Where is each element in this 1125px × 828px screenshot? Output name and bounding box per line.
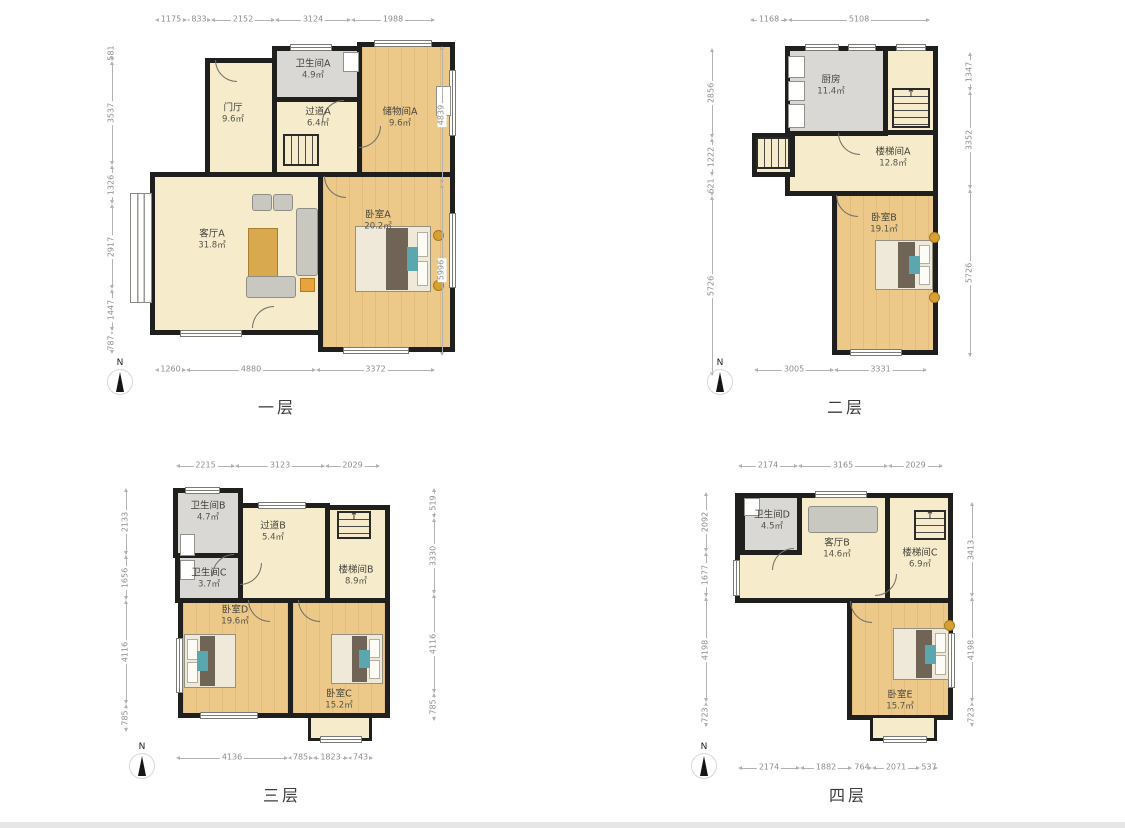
- north-arrow: N: [706, 358, 734, 395]
- bed-pillow: [935, 633, 946, 653]
- dims-top: 1168 5108: [750, 14, 930, 26]
- dim-seg: 5726: [706, 196, 718, 376]
- dim-seg: 4839: [436, 46, 448, 184]
- bed: [355, 226, 431, 292]
- bed-runner: [407, 247, 418, 271]
- room-name: 储物间A: [383, 106, 418, 118]
- room-label-corridor-b: 过道B 5.4㎡: [260, 520, 286, 543]
- room-area: 6.9㎡: [902, 560, 937, 571]
- bed: [184, 634, 236, 688]
- room-label-stairwell-a: 楼梯间A 12.8㎡: [876, 146, 911, 169]
- floor-title: 四层: [788, 782, 908, 806]
- bed-blanket: [386, 228, 408, 290]
- window: [896, 44, 926, 51]
- stairs-up-arrow: ↑: [906, 87, 915, 100]
- dim-seg: 1447: [106, 289, 118, 331]
- room-area: 19.6㎡: [221, 617, 248, 628]
- dims-top: 1175 833 2152 3124 1988: [155, 14, 435, 26]
- dim-seg: 2152: [211, 14, 275, 26]
- dim-seg: 833: [187, 14, 211, 26]
- dims-right: 4839 5996: [436, 46, 448, 356]
- window: [200, 712, 258, 719]
- room-name: 卧室A: [364, 209, 391, 221]
- dims-right: 1347 3352 5726: [964, 52, 976, 357]
- window: [733, 560, 740, 596]
- window: [185, 487, 220, 494]
- dim-seg: 2071: [872, 762, 920, 774]
- dim-seg: 2174: [738, 762, 800, 774]
- room-area: 4.9㎡: [296, 71, 331, 82]
- room-area: 9.6㎡: [383, 119, 418, 130]
- nightstand-lamp: [929, 232, 940, 243]
- dim-seg: 3352: [964, 91, 976, 189]
- bed: [875, 240, 933, 290]
- bed-pillow: [919, 245, 930, 264]
- floor-1-plan: 1175 833 2152 3124 1988 581 3537 1326 29…: [100, 8, 460, 418]
- bed-pillow: [417, 232, 428, 257]
- dim-seg: 1347: [964, 52, 976, 91]
- kitchen-fixture: [788, 81, 805, 101]
- bed-pillow: [369, 660, 380, 679]
- stairs-up-arrow: ↑: [925, 509, 934, 522]
- room-area: 4.7㎡: [190, 513, 225, 524]
- dim-seg: 4198: [700, 597, 712, 702]
- dims-left: 2856 1222 621 5726: [706, 48, 718, 376]
- dim-seg: 2029: [325, 460, 380, 472]
- room-label-living-room-b: 客厅B 14.6㎡: [823, 537, 850, 560]
- stairs-icon: ↑: [892, 88, 930, 128]
- dim-seg: 5108: [788, 14, 930, 26]
- dim-seg: 723: [966, 702, 978, 727]
- dim-seg: 4116: [120, 600, 132, 704]
- window: [374, 40, 432, 47]
- window: [343, 347, 409, 354]
- north-arrow: N: [128, 742, 156, 779]
- room-name: 客厅B: [823, 537, 850, 549]
- dims-right: 519 3330 4116 785: [428, 488, 440, 721]
- dim-seg: 2092: [700, 492, 712, 552]
- compass-icon: [707, 369, 733, 395]
- room-name: 客厅A: [198, 228, 225, 240]
- room-name: 卫生间D: [754, 509, 790, 521]
- dim-seg: 2174: [738, 460, 798, 472]
- dim-seg: 5726: [964, 189, 976, 357]
- room-area: 15.7㎡: [886, 702, 913, 713]
- bed-pillow: [935, 655, 946, 675]
- room-area: 8.9㎡: [338, 577, 373, 588]
- dim-seg: 3372: [316, 364, 435, 376]
- compass-icon: [129, 753, 155, 779]
- bay-window: [130, 193, 152, 303]
- dim-seg: 2856: [706, 48, 718, 138]
- dim-seg: 5996: [436, 184, 448, 356]
- floorplan-sheet: 1175 833 2152 3124 1988 581 3537 1326 29…: [0, 0, 1125, 828]
- bathroom-fixture: [180, 534, 195, 556]
- bed: [331, 634, 383, 684]
- room-stairwell-a-hall: [785, 130, 938, 196]
- north-label: N: [139, 742, 146, 752]
- dims-bottom: 2174 1882 764 2071 537: [738, 762, 938, 774]
- room-label-bathroom-b: 卫生间B 4.7㎡: [190, 500, 225, 523]
- dim-seg: 723: [700, 702, 712, 727]
- room-area: 15.2㎡: [325, 701, 352, 712]
- dim-seg: 537: [920, 762, 938, 774]
- room-label-bathroom-c: 卫生间C 3.7㎡: [191, 567, 226, 590]
- bathroom-fixture: [343, 52, 359, 72]
- dim-seg: 1168: [750, 14, 788, 26]
- dim-seg: 581: [106, 44, 118, 61]
- dim-seg: 1882: [800, 762, 852, 774]
- room-label-storage-a: 储物间A 9.6㎡: [383, 106, 418, 129]
- bottom-edge-strip: [0, 822, 1125, 828]
- bed-runner: [909, 256, 920, 274]
- floor-2-plan: 1168 5108 2856 1222 621 5726 1347 3352 5…: [700, 8, 1000, 418]
- bed-pillow: [919, 266, 930, 285]
- room-name: 过道B: [260, 520, 286, 532]
- north-label: N: [117, 358, 124, 368]
- dim-seg: 1677: [700, 552, 712, 597]
- floor-title: 二层: [786, 394, 906, 418]
- dim-seg: 4880: [186, 364, 316, 376]
- window: [290, 44, 332, 51]
- room-area: 14.6㎡: [823, 550, 850, 561]
- dim-seg: 1260: [155, 364, 186, 376]
- room-area: 20.2㎡: [364, 222, 391, 233]
- north-label: N: [717, 358, 724, 368]
- compass-needle: [700, 756, 708, 776]
- room-name: 楼梯间A: [876, 146, 911, 158]
- side-table: [300, 278, 315, 292]
- room-area: 9.6㎡: [222, 115, 244, 126]
- room-name: 过道A: [305, 106, 331, 118]
- room-area: 19.1㎡: [870, 225, 897, 236]
- room-name: 厨房: [817, 74, 844, 86]
- room-area: 6.4㎡: [305, 119, 331, 130]
- coffee-table: [248, 228, 278, 280]
- dims-bottom: 3005 3331: [754, 364, 927, 376]
- room-name: 卧室D: [221, 604, 248, 616]
- window: [815, 491, 867, 498]
- armchair: [273, 194, 293, 211]
- bed-pillow: [417, 261, 428, 286]
- dim-seg: 3165: [798, 460, 888, 472]
- dim-seg: 787: [106, 331, 118, 354]
- room-area: 4.5㎡: [754, 522, 790, 533]
- floor-title: 三层: [222, 782, 342, 806]
- dim-seg: 2029: [888, 460, 943, 472]
- room-label-living-room-a: 客厅A 31.8㎡: [198, 228, 225, 251]
- dim-seg: 3124: [275, 14, 351, 26]
- floor-title: 一层: [217, 394, 337, 418]
- compass-needle: [116, 372, 124, 392]
- window: [850, 349, 902, 356]
- room-label-bedroom-e: 卧室E 15.7㎡: [886, 689, 913, 712]
- room-area: 31.8㎡: [198, 241, 225, 252]
- room-name: 卫生间B: [190, 500, 225, 512]
- dims-bottom: 1260 4880 3372: [155, 364, 435, 376]
- stairs-icon: ↑: [914, 510, 946, 540]
- room-area: 12.8㎡: [876, 159, 911, 170]
- bed-runner: [197, 651, 208, 671]
- room-label-bedroom-d: 卧室D 19.6㎡: [221, 604, 248, 627]
- window: [805, 44, 839, 51]
- dim-seg: 2215: [176, 460, 235, 472]
- dims-left: 2133 1656 4116 785: [120, 488, 132, 732]
- room-name: 门厅: [222, 102, 244, 114]
- kitchen-fixture: [788, 56, 805, 78]
- window: [948, 633, 955, 688]
- room-area: 11.4㎡: [817, 87, 844, 98]
- dim-seg: 4198: [966, 597, 978, 702]
- room-name: 楼梯间B: [338, 564, 373, 576]
- sofa: [296, 208, 318, 276]
- room-label-bedroom-c: 卧室C 15.2㎡: [325, 688, 352, 711]
- dim-seg: 3123: [235, 460, 325, 472]
- north-arrow: N: [106, 358, 134, 395]
- window: [176, 638, 183, 693]
- sofa: [246, 276, 296, 298]
- north-arrow: N: [690, 742, 718, 779]
- dim-seg: 3005: [754, 364, 834, 376]
- bed-runner: [925, 645, 936, 664]
- dim-seg: 1988: [351, 14, 435, 26]
- dim-seg: 621: [706, 176, 718, 196]
- dim-seg: 3537: [106, 61, 118, 165]
- stairs-icon: [756, 137, 790, 169]
- dim-seg: 785: [428, 693, 440, 721]
- armchair: [252, 194, 272, 211]
- room-name: 卧室B: [870, 212, 897, 224]
- window: [258, 502, 306, 509]
- room-label-stairwell-b: 楼梯间B 8.9㎡: [338, 564, 373, 587]
- compass-needle: [716, 372, 724, 392]
- dim-seg: 3413: [966, 502, 978, 597]
- kitchen-fixture: [788, 104, 805, 128]
- dims-left: 581 3537 1326 2917 1447 787: [106, 44, 118, 354]
- floor-3-plan: 2215 3123 2029 2133 1656 4116 785 519 33…: [100, 448, 460, 812]
- dims-left: 2092 1677 4198 723: [700, 492, 712, 727]
- floor-4-plan: 2174 3165 2029 2092 1677 4198 723 3413 4…: [680, 448, 1000, 812]
- bed-pillow: [369, 639, 380, 658]
- room-label-bedroom-a: 卧室A 20.2㎡: [364, 209, 391, 232]
- dim-seg: 2917: [106, 204, 118, 289]
- dim-seg: 3331: [834, 364, 927, 376]
- dims-right: 3413 4198 723: [966, 502, 978, 727]
- stairs-up-arrow: ↑: [349, 510, 358, 523]
- room-label-stairwell-c: 楼梯间C 6.9㎡: [902, 547, 937, 570]
- room-name: 楼梯间C: [902, 547, 937, 559]
- stairs-icon: ↑: [337, 511, 371, 539]
- dims-bottom: 4136 785 1823 743: [176, 752, 373, 764]
- room-area: 5.4㎡: [260, 533, 286, 544]
- dim-seg: 1175: [155, 14, 187, 26]
- dim-seg: 4116: [428, 594, 440, 693]
- compass-needle: [138, 756, 146, 776]
- window: [848, 44, 876, 51]
- dim-seg: 2133: [120, 488, 132, 555]
- dim-seg: 785: [120, 704, 132, 732]
- dims-top: 2174 3165 2029: [738, 460, 943, 472]
- room-name: 卫生间C: [191, 567, 226, 579]
- stairs-icon: [283, 134, 319, 166]
- dim-seg: 743: [348, 752, 373, 764]
- dims-top: 2215 3123 2029: [176, 460, 380, 472]
- room-label-bedroom-b: 卧室B 19.1㎡: [870, 212, 897, 235]
- room-area: 3.7㎡: [191, 580, 226, 591]
- dim-seg: 1823: [313, 752, 348, 764]
- dim-seg: 4136: [176, 752, 288, 764]
- dim-seg: 785: [288, 752, 313, 764]
- dim-seg: 764: [852, 762, 872, 774]
- room-corridor-b: [238, 503, 330, 603]
- room-label-corridor-a: 过道A 6.4㎡: [305, 106, 331, 129]
- window: [449, 213, 456, 288]
- window: [180, 330, 242, 337]
- room-label-bathroom-d: 卫生间D 4.5㎡: [754, 509, 790, 532]
- window: [320, 736, 362, 743]
- dim-seg: 3330: [428, 518, 440, 594]
- compass-icon: [691, 753, 717, 779]
- dim-seg: 1326: [106, 165, 118, 204]
- dim-seg: 519: [428, 488, 440, 518]
- room-label-entry-hall: 门厅 9.6㎡: [222, 102, 244, 125]
- nightstand-lamp: [944, 620, 955, 631]
- room-name: 卫生间A: [296, 58, 331, 70]
- dim-seg: 1222: [706, 138, 718, 176]
- sofa: [808, 506, 878, 533]
- dim-seg: 1656: [120, 555, 132, 600]
- room-label-bathroom-a: 卫生间A 4.9㎡: [296, 58, 331, 81]
- north-label: N: [701, 742, 708, 752]
- bed-runner: [359, 650, 370, 668]
- nightstand-lamp: [929, 292, 940, 303]
- bed: [893, 628, 949, 680]
- room-label-kitchen: 厨房 11.4㎡: [817, 74, 844, 97]
- room-name: 卧室E: [886, 689, 913, 701]
- window: [883, 736, 927, 743]
- room-name: 卧室C: [325, 688, 352, 700]
- compass-icon: [107, 369, 133, 395]
